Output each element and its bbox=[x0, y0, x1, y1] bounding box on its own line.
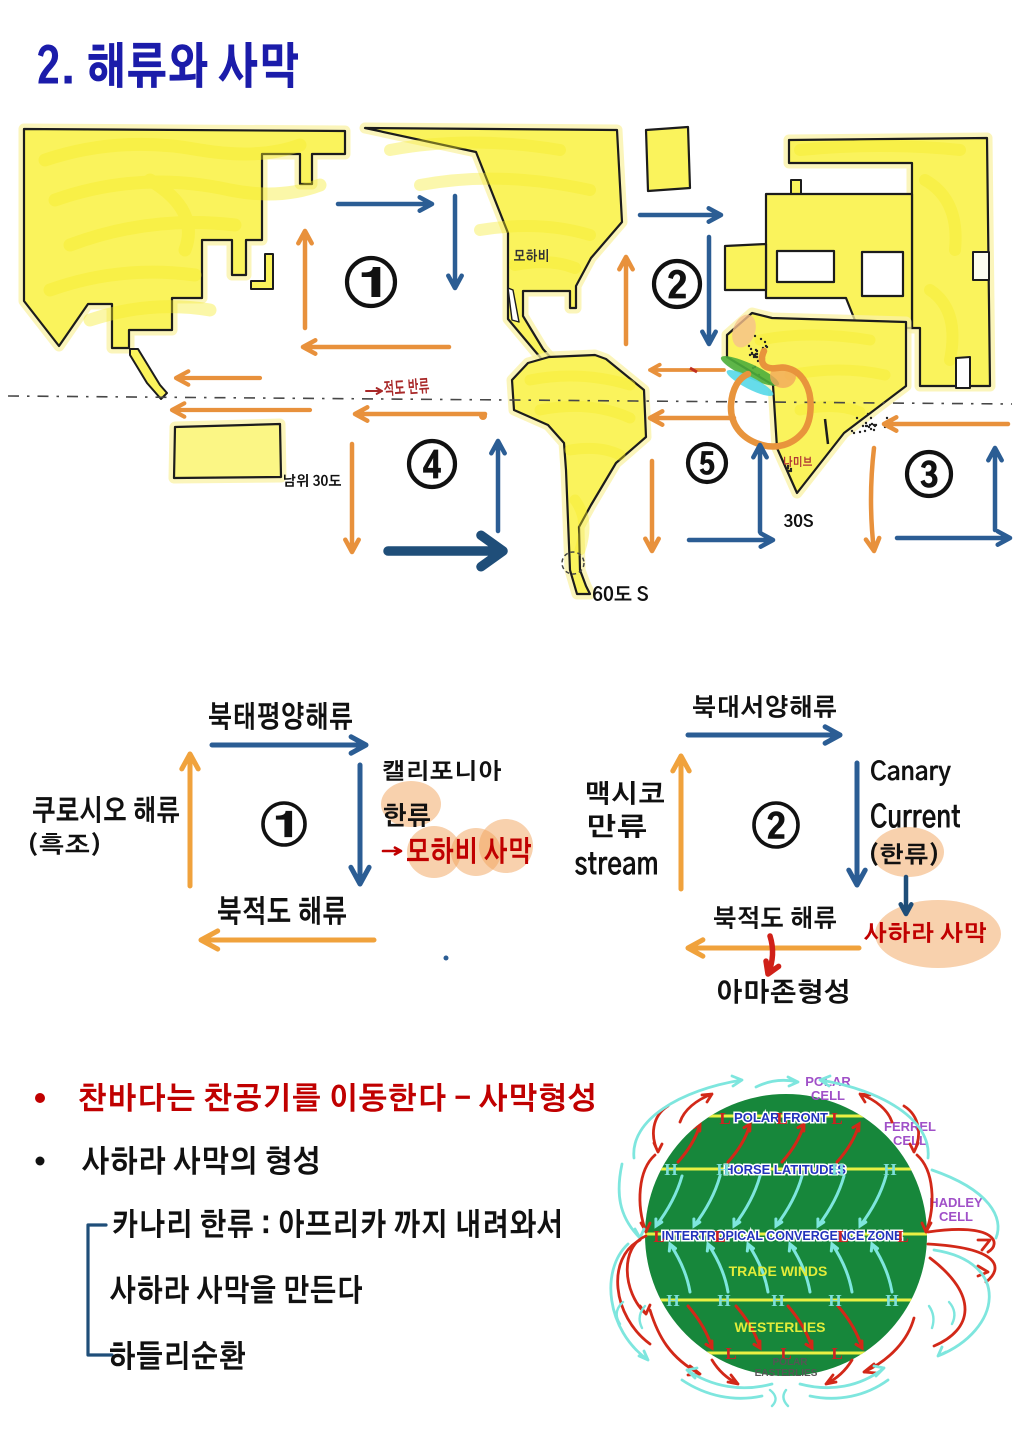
svg-text:H: H bbox=[666, 1291, 679, 1310]
svg-text:CELL: CELL bbox=[939, 1209, 973, 1224]
svg-text:INTERTROPICAL CONVERGENCE ZONE: INTERTROPICAL CONVERGENCE ZONE bbox=[662, 1229, 903, 1243]
svg-text:WESTERLIES: WESTERLIES bbox=[734, 1319, 825, 1335]
svg-text:L: L bbox=[837, 1227, 848, 1246]
svg-text:L: L bbox=[714, 1227, 725, 1246]
svg-text:EASTERLIES: EASTERLIES bbox=[755, 1368, 818, 1379]
svg-text:H: H bbox=[883, 1160, 896, 1179]
svg-text:L: L bbox=[776, 1109, 787, 1128]
svg-text:CELL: CELL bbox=[811, 1088, 845, 1103]
svg-text:L: L bbox=[831, 1109, 842, 1128]
svg-text:H: H bbox=[716, 1160, 729, 1179]
svg-text:TRADE WINDS: TRADE WINDS bbox=[729, 1263, 828, 1279]
svg-text:H: H bbox=[664, 1160, 677, 1179]
svg-text:H: H bbox=[717, 1291, 730, 1310]
svg-text:L: L bbox=[831, 1344, 842, 1363]
svg-text:L: L bbox=[653, 1227, 664, 1246]
svg-text:HADLEY: HADLEY bbox=[929, 1195, 983, 1210]
svg-text:H: H bbox=[771, 1291, 784, 1310]
svg-text:H: H bbox=[885, 1291, 898, 1310]
svg-text:L: L bbox=[897, 1227, 908, 1246]
svg-text:H: H bbox=[828, 1291, 841, 1310]
svg-text:L: L bbox=[725, 1344, 736, 1363]
svg-text:POLAR: POLAR bbox=[773, 1357, 809, 1368]
svg-text:H: H bbox=[831, 1160, 844, 1179]
svg-text:HORSE LATITUDES: HORSE LATITUDES bbox=[724, 1162, 846, 1177]
svg-text:L: L bbox=[719, 1109, 730, 1128]
